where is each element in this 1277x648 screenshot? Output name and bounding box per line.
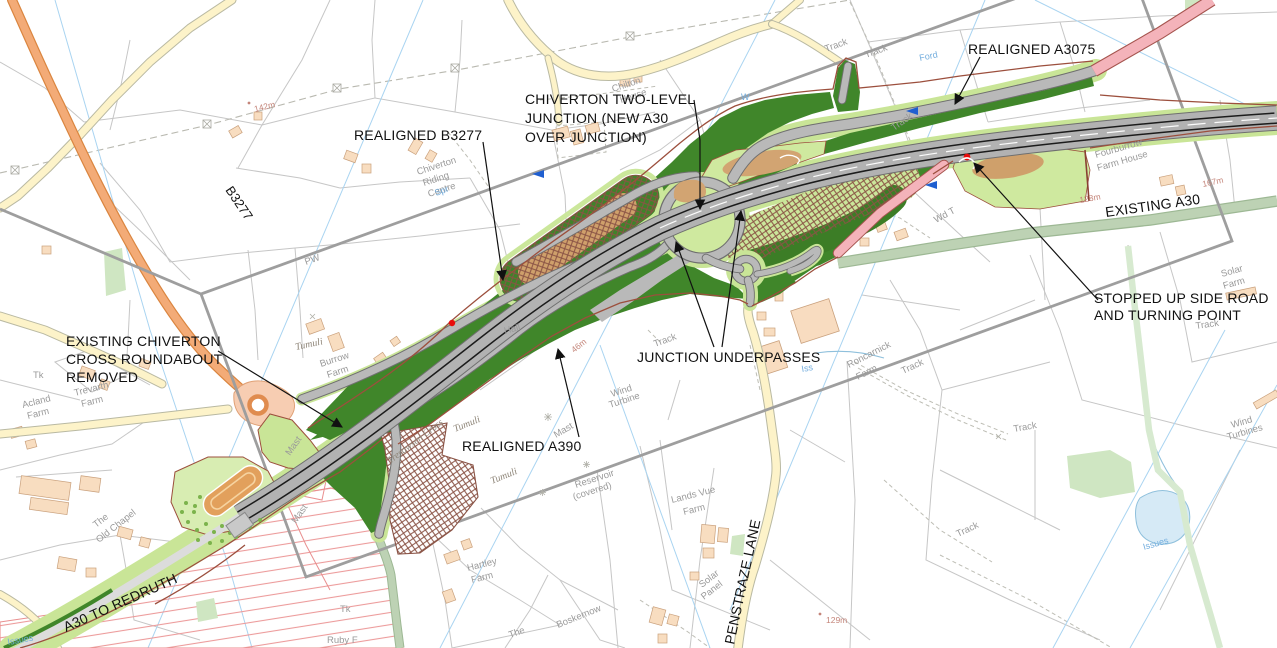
svg-text:Tk: Tk [340,604,351,615]
svg-text:REALIGNED A3075: REALIGNED A3075 [968,41,1096,57]
svg-text:STOPPED UP SIDE ROAD: STOPPED UP SIDE ROAD [1094,290,1269,306]
svg-text:REALIGNED A390: REALIGNED A390 [462,438,582,454]
svg-text:EXISTING CHIVERTON: EXISTING CHIVERTON [66,333,221,349]
svg-text:REMOVED: REMOVED [66,369,138,385]
svg-text:JUNCTION (NEW A30: JUNCTION (NEW A30 [525,110,668,126]
svg-text:W: W [741,92,750,102]
svg-text:OVER JUNCTION): OVER JUNCTION) [525,129,647,145]
svg-text:CROSS ROUNDABOUT: CROSS ROUNDABOUT [66,351,223,367]
svg-text:129m: 129m [826,615,847,625]
svg-text:JUNCTION UNDERPASSES: JUNCTION UNDERPASSES [637,349,820,365]
svg-text:CHIVERTON TWO-LEVEL: CHIVERTON TWO-LEVEL [525,91,695,107]
svg-text:REALIGNED B3277: REALIGNED B3277 [354,127,482,143]
svg-text:AND TURNING POINT: AND TURNING POINT [1094,307,1241,323]
svg-text:Tk: Tk [33,370,44,381]
svg-text:Ruby F: Ruby F [327,635,358,646]
